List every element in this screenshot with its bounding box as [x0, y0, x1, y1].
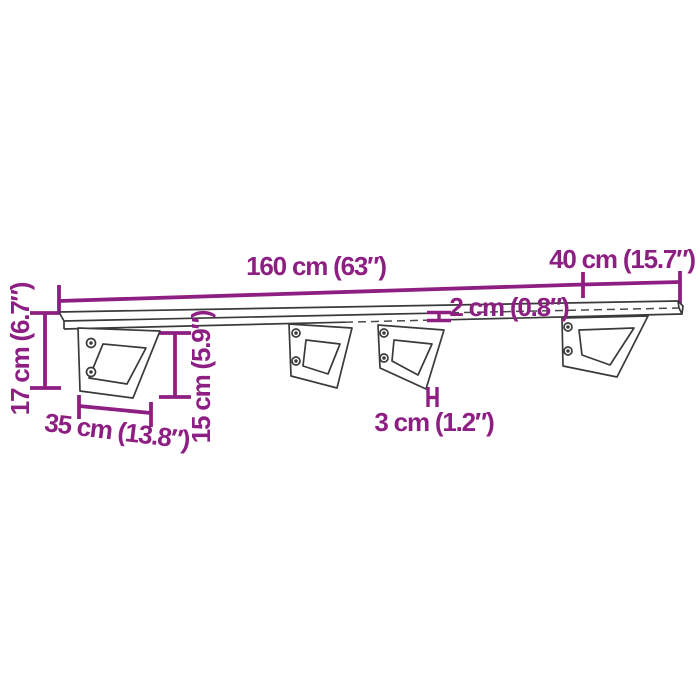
- dim-label-bar-width: 3 cm (1.2″): [374, 409, 493, 435]
- shelf-diagram-canvas: [0, 0, 700, 700]
- dim-label-thickness: 2 cm (0.8″): [449, 294, 568, 320]
- product-dimension-diagram: 160 cm (63″) 40 cm (15.7″) 2 cm (0.8″) 3…: [0, 0, 700, 700]
- bracket-1: [78, 328, 160, 398]
- dim-marker-bar-width: [428, 387, 437, 407]
- dim-label-length: 160 cm (63″): [246, 253, 386, 279]
- dim-label-bracket-height: 15 cm (5.9″): [188, 311, 214, 443]
- dim-label-depth: 40 cm (15.7″): [549, 246, 695, 272]
- bracket-3: [378, 325, 444, 389]
- dim-line-depth: [583, 271, 680, 304]
- bracket-2: [289, 324, 352, 388]
- bracket-4: [562, 316, 648, 377]
- dim-label-overall-height: 17 cm (6.7″): [7, 283, 33, 415]
